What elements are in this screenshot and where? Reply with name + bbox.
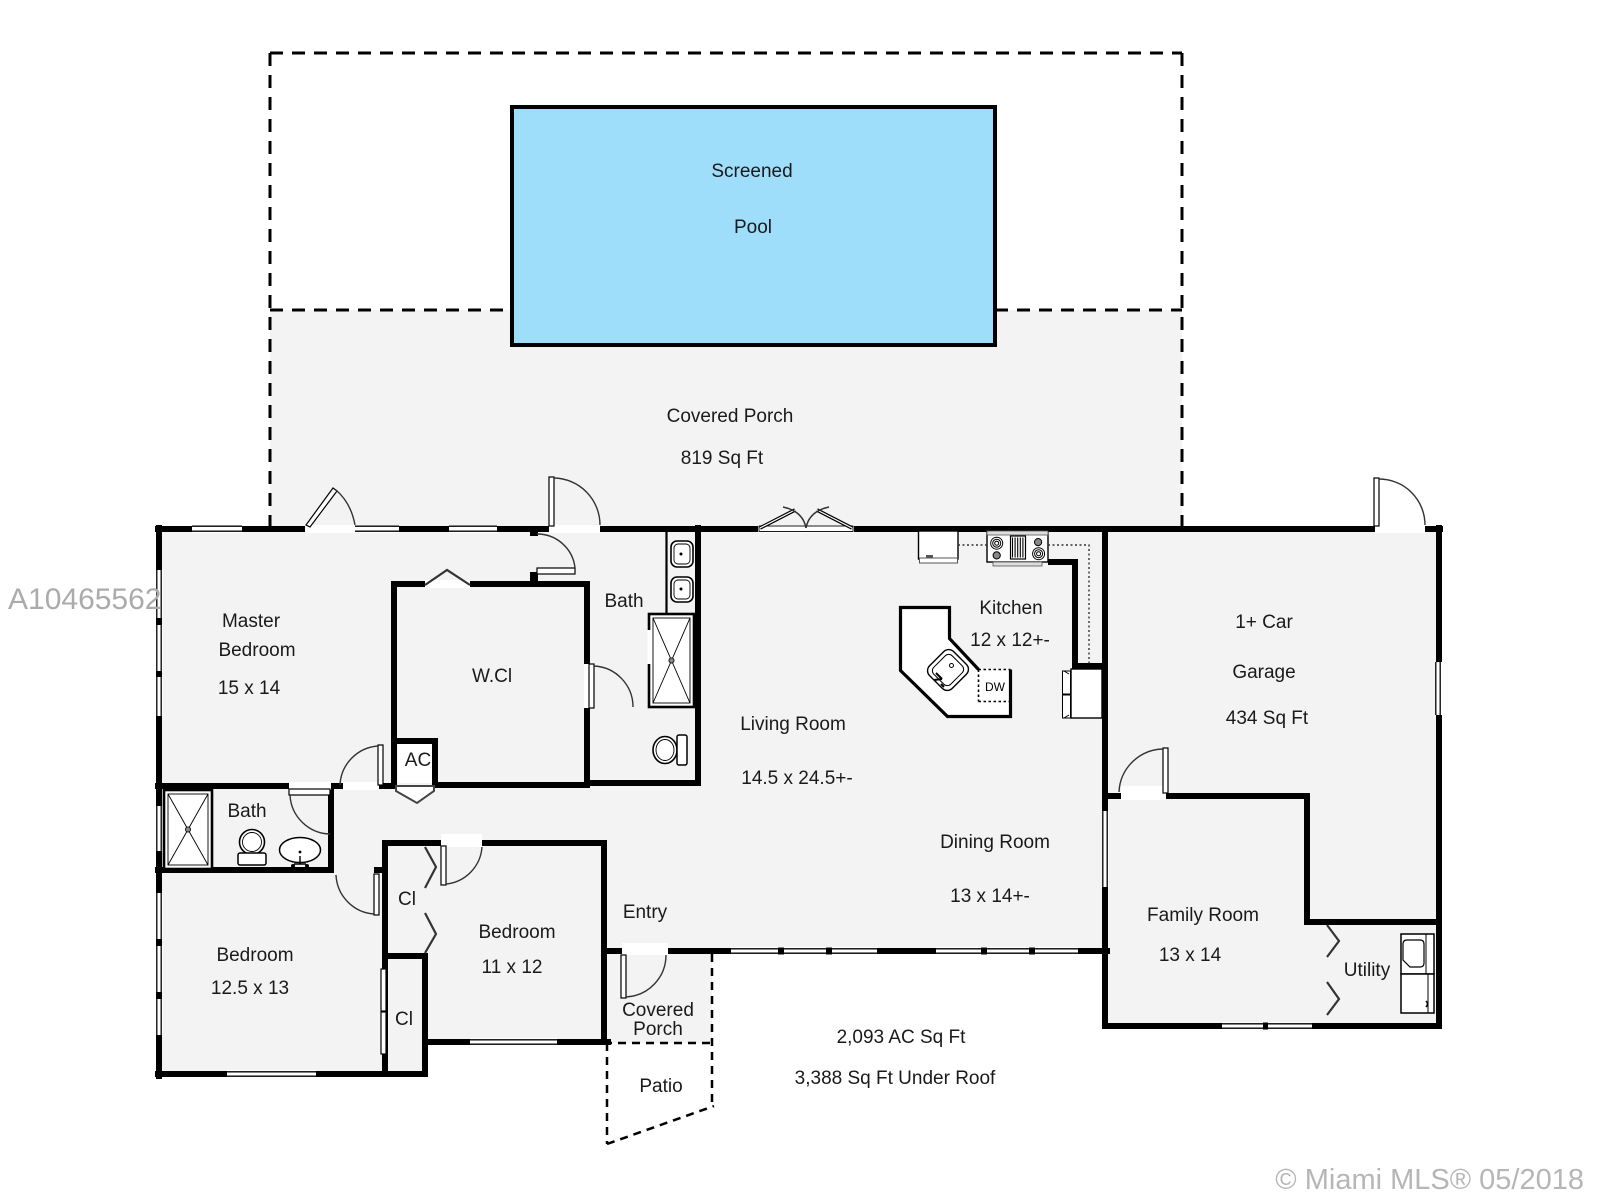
svg-text:13 x 14+-: 13 x 14+- [950, 886, 1030, 907]
svg-text:A10465562: A10465562 [8, 583, 162, 616]
svg-text:12 x 12+-: 12 x 12+- [970, 630, 1050, 651]
svg-text:Patio: Patio [639, 1076, 682, 1097]
svg-text:Dining Room: Dining Room [940, 832, 1050, 853]
svg-text:3,388 Sq Ft Under Roof: 3,388 Sq Ft Under Roof [795, 1068, 996, 1089]
svg-text:12.5 x 13: 12.5 x 13 [211, 978, 289, 999]
svg-text:Garage: Garage [1232, 662, 1295, 683]
svg-text:Cl: Cl [395, 1009, 413, 1030]
svg-text:Porch: Porch [633, 1019, 683, 1040]
svg-text:15 x 14: 15 x 14 [218, 678, 281, 699]
svg-text:Entry: Entry [623, 902, 668, 923]
svg-text:Bedroom: Bedroom [216, 945, 293, 966]
svg-text:Family Room: Family Room [1147, 905, 1259, 926]
svg-text:1+ Car: 1+ Car [1235, 612, 1293, 633]
svg-text:Living Room: Living Room [740, 714, 846, 735]
svg-text:2,093 AC Sq Ft: 2,093 AC Sq Ft [837, 1027, 967, 1048]
svg-text:Covered Porch: Covered Porch [667, 406, 794, 427]
svg-text:819 Sq Ft: 819 Sq Ft [681, 448, 764, 469]
svg-text:Bath: Bath [227, 801, 266, 822]
svg-text:434 Sq Ft: 434 Sq Ft [1226, 708, 1309, 729]
svg-text:Pool: Pool [734, 217, 772, 238]
svg-text:Kitchen: Kitchen [979, 598, 1042, 619]
svg-text:Bedroom: Bedroom [478, 922, 555, 943]
svg-text:Bath: Bath [604, 591, 643, 612]
svg-text:Master: Master [222, 611, 281, 632]
svg-text:© Miami MLS® 05/2018: © Miami MLS® 05/2018 [1275, 1164, 1584, 1196]
svg-text:Screened: Screened [711, 161, 792, 182]
svg-text:W.Cl: W.Cl [472, 666, 512, 687]
svg-text:11 x 12: 11 x 12 [482, 957, 543, 978]
svg-text:Cl: Cl [398, 889, 416, 910]
svg-text:14.5 x 24.5+-: 14.5 x 24.5+- [741, 768, 852, 789]
svg-text:13 x 14: 13 x 14 [1159, 945, 1222, 966]
svg-text:Bedroom: Bedroom [218, 640, 295, 661]
svg-text:AC: AC [405, 750, 431, 771]
svg-text:Covered: Covered [622, 1000, 694, 1021]
svg-text:Utility: Utility [1344, 960, 1391, 981]
svg-text:DW: DW [985, 680, 1006, 694]
